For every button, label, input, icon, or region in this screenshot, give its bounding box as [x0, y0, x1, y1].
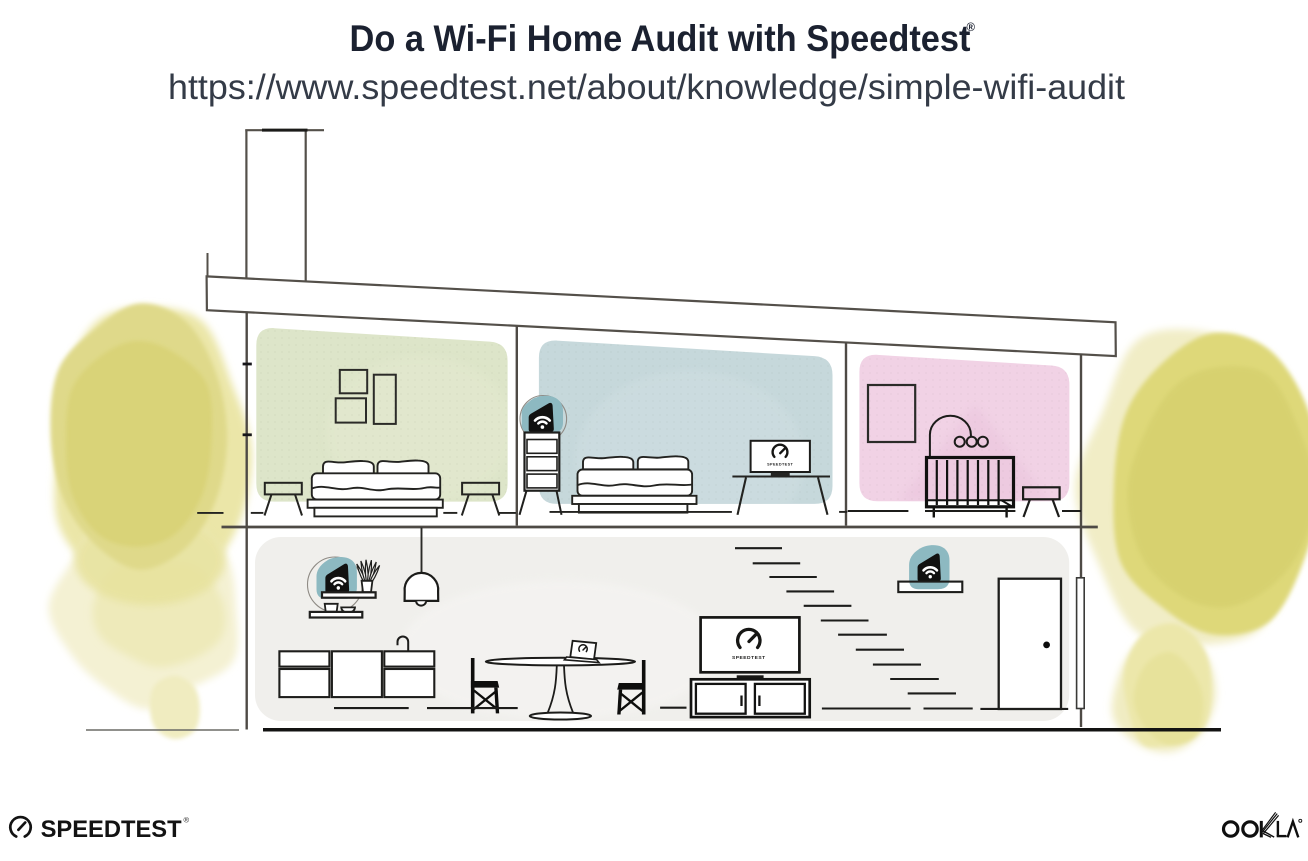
svg-text:https://www.speedtest.net/abou: https://www.speedtest.net/about/knowledg… [168, 67, 1125, 107]
svg-text:®: ® [184, 816, 190, 825]
svg-text:®: ® [967, 22, 976, 34]
svg-text:Do a Wi-Fi Home Audit with Spe: Do a Wi-Fi Home Audit with Speedtest [350, 18, 971, 59]
svg-text:SPEEDTEST: SPEEDTEST [767, 462, 793, 466]
svg-text:SPEEDTEST: SPEEDTEST [732, 655, 766, 661]
svg-text:SPEEDTEST: SPEEDTEST [41, 816, 182, 843]
